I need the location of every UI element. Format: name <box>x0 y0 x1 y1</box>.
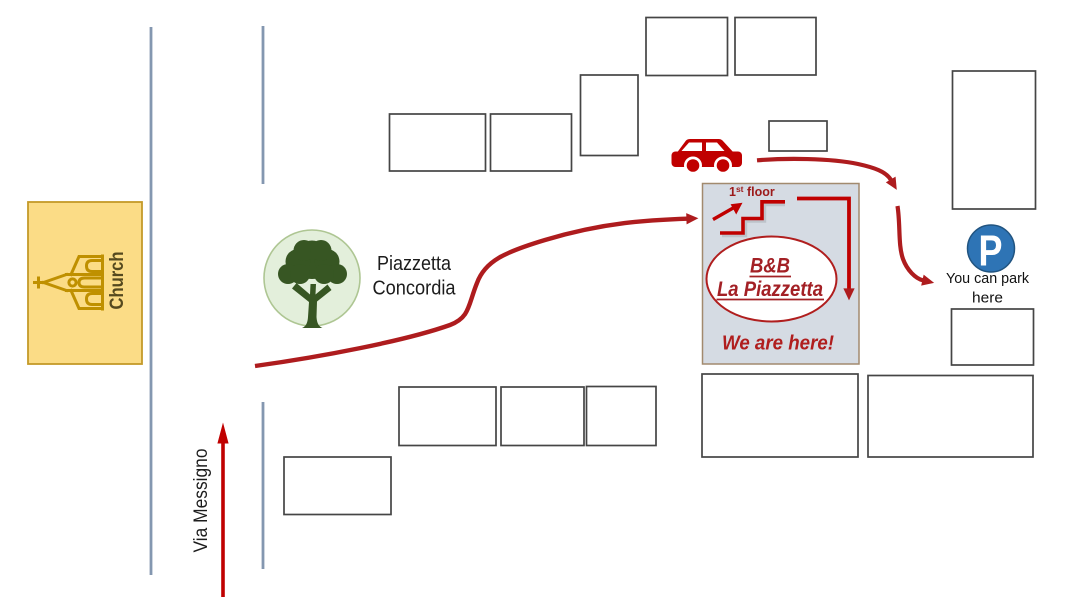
svg-text:Concordia: Concordia <box>373 277 457 300</box>
svg-text:We are here!: We are here! <box>722 332 834 355</box>
svg-text:La Piazzetta: La Piazzetta <box>717 278 823 301</box>
svg-text:Church: Church <box>107 252 128 310</box>
svg-text:1st floor: 1st floor <box>729 184 775 199</box>
svg-text:here: here <box>972 290 1003 307</box>
svg-text:Via Messigno: Via Messigno <box>190 448 212 552</box>
svg-text:Piazzetta: Piazzetta <box>377 252 452 275</box>
svg-text:P: P <box>979 227 1003 276</box>
svg-text:B&B: B&B <box>750 255 790 278</box>
svg-text:You can park: You can park <box>946 270 1029 287</box>
